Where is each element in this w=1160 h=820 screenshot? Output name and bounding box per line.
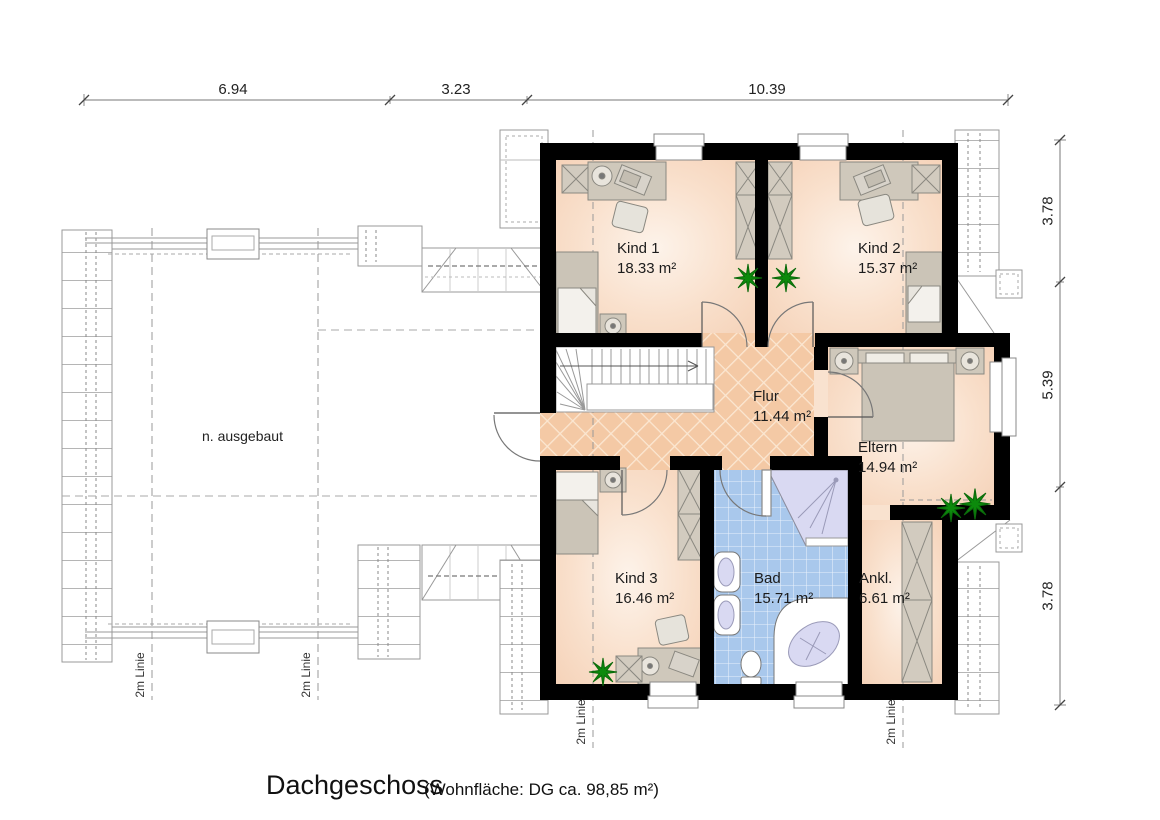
room-label-eltern-name: Eltern — [858, 438, 897, 458]
dim-label-top-3: 10.39 — [748, 81, 786, 98]
plant-icon — [772, 264, 800, 292]
room-label-flur-name: Flur — [753, 387, 779, 407]
room-label-bad-name: Bad — [754, 569, 781, 589]
window-bottom-bad — [794, 682, 844, 708]
room-label-kind1-name: Kind 1 — [617, 239, 660, 259]
two-m-line-label: 2m Linie — [574, 699, 588, 744]
floor-plan: 6.94 3.23 10.39 3.78 5.39 3.78 Kind 1 18… — [0, 0, 1160, 820]
room-label-bad-area: 15.71 m² — [754, 589, 813, 609]
dim-label-top-1: 6.94 — [218, 81, 247, 98]
dim-label-right-1: 3.78 — [1040, 196, 1057, 225]
plan-subtitle: (Wohnfläche: DG ca. 98,85 m²) — [424, 780, 659, 800]
toilet — [741, 651, 761, 677]
two-m-line-label: 2m Linie — [299, 652, 313, 697]
room-label-kind1-area: 18.33 m² — [617, 259, 676, 279]
eave-bottom-right — [955, 520, 1022, 714]
two-m-line-label: 2m Linie — [884, 699, 898, 744]
room-label-kind3-name: Kind 3 — [615, 569, 658, 589]
double-bed — [862, 363, 954, 441]
dim-label-right-3: 3.78 — [1040, 581, 1057, 610]
skylight-bottom — [207, 621, 259, 653]
unfinished-wing — [62, 228, 537, 700]
dormer-top — [358, 226, 545, 292]
plan-title: Dachgeschoss — [266, 770, 443, 801]
plant-icon — [734, 264, 762, 292]
plant-icon — [589, 658, 617, 686]
dim-label-top-2: 3.23 — [441, 81, 470, 98]
two-m-line-label: 2m Linie — [133, 652, 147, 697]
floor-plan-drawing — [0, 0, 1160, 820]
eltern-door-floor — [814, 370, 828, 417]
bed — [556, 472, 598, 502]
dim-label-right-2: 5.39 — [1040, 370, 1057, 399]
window-top-kind2 — [798, 134, 848, 160]
room-label-ankl-area: 6.61 m² — [859, 589, 910, 609]
eave-top-right — [955, 130, 1022, 333]
room-label-eltern-area: 14.94 m² — [858, 458, 917, 478]
plant-icon — [937, 494, 965, 522]
plant-icon — [960, 489, 991, 520]
passage-floor — [862, 505, 890, 520]
room-label-kind2-name: Kind 2 — [858, 239, 901, 259]
door-entry-flur — [494, 413, 540, 461]
room-label-flur-area: 11.44 m² — [753, 407, 811, 427]
room-label-kind2-area: 15.37 m² — [858, 259, 917, 279]
window-top-kind1 — [654, 134, 704, 160]
skylight-top — [207, 229, 259, 259]
room-label-kind3-area: 16.46 m² — [615, 589, 674, 609]
stairs — [556, 347, 714, 412]
window-bottom-kind3 — [648, 682, 698, 708]
window-eltern-right — [990, 358, 1016, 436]
unfinished-area-label: n. ausgebaut — [202, 428, 283, 444]
room-label-ankl-name: Ankl. — [859, 569, 892, 589]
